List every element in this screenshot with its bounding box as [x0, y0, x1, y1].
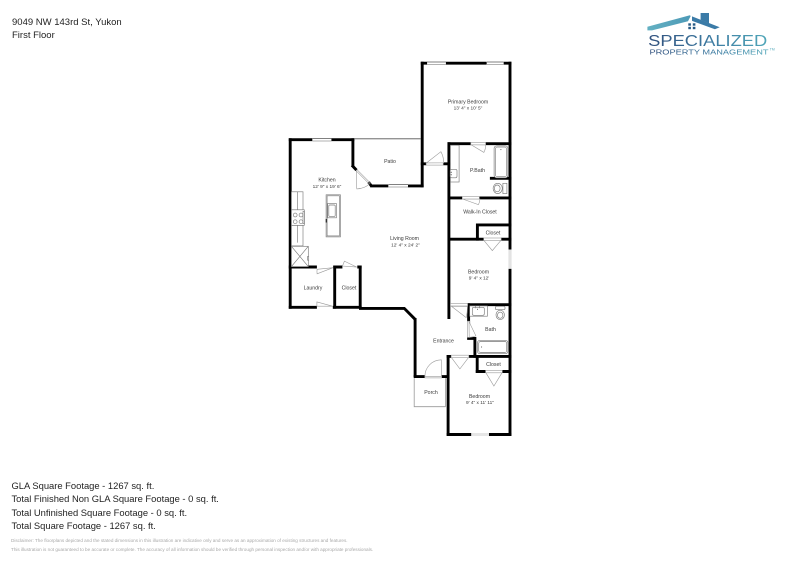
svg-text:P.Bath: P.Bath	[470, 168, 485, 174]
svg-text:9' 4" x 12': 9' 4" x 12'	[469, 275, 489, 281]
svg-text:Primary Bedroom: Primary Bedroom	[448, 100, 488, 106]
svg-text:Walk-In Closet: Walk-In Closet	[463, 210, 497, 216]
svg-text:9' 4" x 11' 11": 9' 4" x 11' 11"	[466, 400, 494, 406]
svg-text:Bath: Bath	[485, 327, 496, 333]
svg-text:Closet: Closet	[486, 230, 501, 236]
svg-text:Kitchen: Kitchen	[318, 177, 335, 183]
svg-text:12' 4" x 24' 2": 12' 4" x 24' 2"	[391, 243, 420, 249]
svg-text:13' 4" x 10' 5": 13' 4" x 10' 5"	[454, 106, 483, 112]
svg-text:Porch: Porch	[424, 390, 438, 396]
svg-text:12' 9" x 19' 6": 12' 9" x 19' 6"	[313, 184, 342, 190]
svg-text:Living Room: Living Room	[390, 236, 419, 242]
svg-text:Bedroom: Bedroom	[469, 394, 490, 400]
svg-text:Patio: Patio	[384, 159, 396, 165]
svg-text:Laundry: Laundry	[304, 286, 323, 292]
svg-text:Entrance: Entrance	[433, 339, 454, 345]
svg-text:Closet: Closet	[342, 286, 357, 292]
svg-text:Bedroom: Bedroom	[468, 269, 489, 275]
svg-text:Closet: Closet	[486, 362, 501, 368]
